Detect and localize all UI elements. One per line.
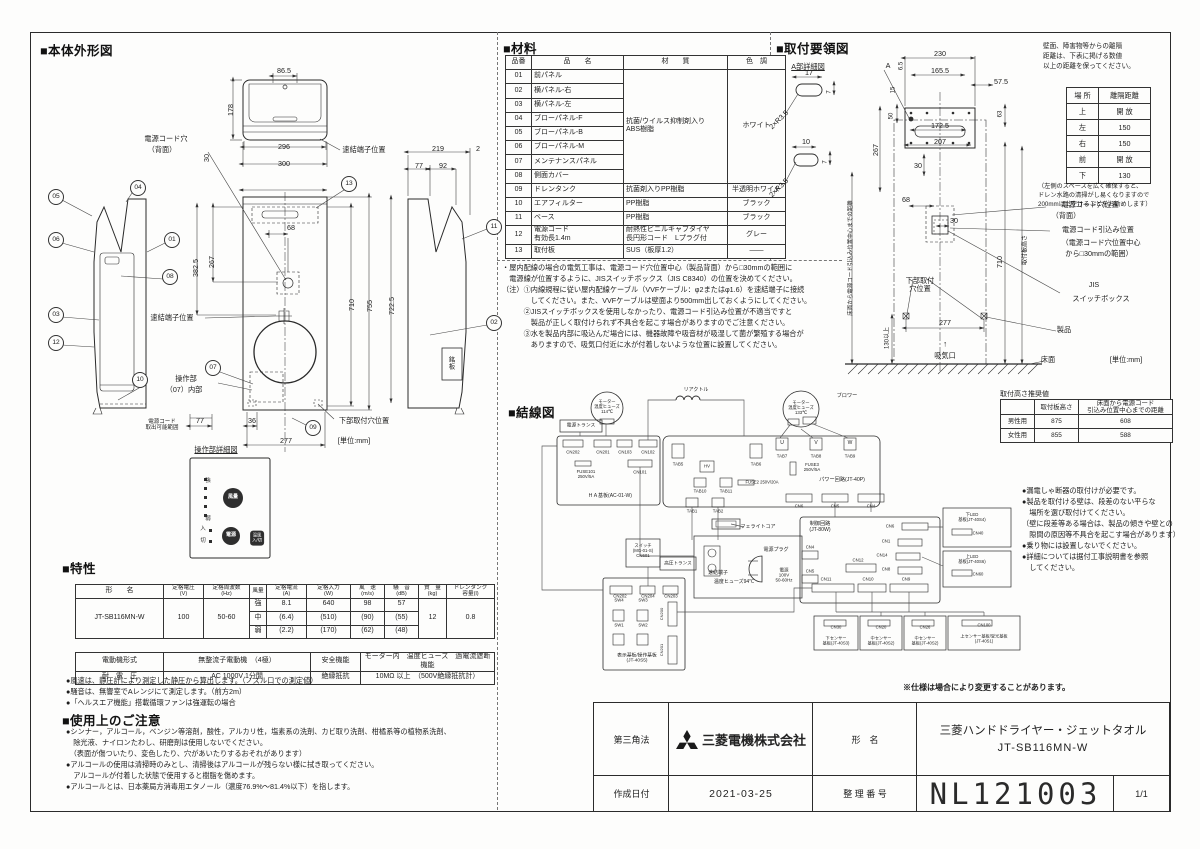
drawing-label: 277	[280, 437, 292, 445]
drawing-label: 165.5	[931, 67, 949, 75]
drawing-label: CN201	[660, 644, 664, 656]
text-line: アルコールが付着した状態で使用すると樹脂を傷めます。	[66, 771, 451, 782]
table-cell: 風量	[250, 585, 267, 599]
drawing-label: 36	[248, 417, 256, 425]
table-cell: 0.8	[447, 598, 495, 639]
wiring-diagram	[557, 391, 1020, 670]
text-line: 電源線が位置するように、JISスイッチボックス（JIS C8340）の位置を決め…	[502, 274, 811, 285]
drawing-label: 77	[415, 162, 423, 170]
part-balloon-04: 04	[130, 180, 146, 196]
drawing-label: 300	[278, 160, 290, 168]
drawing-label: 上LED 基板(JT-40S6)	[958, 555, 985, 565]
product-name-cell: 三菱ハンドドライヤー・ジェットタオル JT-SB116MN-W	[916, 702, 1170, 777]
table-cell: 定格電圧 (V)	[164, 585, 204, 599]
drawing-label: CN20	[876, 626, 887, 631]
table-cell: 10	[506, 197, 532, 211]
drawing-label: 755	[366, 300, 374, 312]
text-line: ●詳細については据付工事説明書を参照	[1022, 552, 1180, 563]
drawing-sheet: ■本体外形図 ■材料 ■取付要領図 ■結線図 ■特性 ■使用上のご注意 品番品 …	[0, 0, 1200, 849]
drawing-label: 77	[196, 417, 204, 425]
drawing-label: 速結端子位置	[342, 146, 385, 154]
table-cell: 05	[506, 126, 532, 140]
install-dims	[786, 56, 1060, 364]
text-line: ●アルコールの使用は清掃時のみとし、清掃後はアルコールが残らない様に拭き取ってく…	[66, 760, 451, 771]
table-cell: 右	[1067, 136, 1099, 152]
text-line: 製品が正しく取付けられず不具合を起こす場合がありますのでご注意ください。	[502, 318, 811, 329]
height-table-title: 取付高さ推奨値	[1000, 390, 1049, 401]
table-cell: 離隔距離	[1099, 88, 1151, 104]
company-name: 三菱電機株式会社	[702, 730, 806, 749]
table-cell: 130	[1099, 168, 1151, 184]
drawing-label: 中センサー 基板(JT-40S2)	[868, 636, 895, 645]
table-cell: 横パネル-左	[532, 98, 624, 112]
drawing-label: CN6	[886, 525, 895, 530]
drawing-label: 207	[934, 138, 946, 146]
drawing-label: 219	[432, 145, 444, 153]
drawing-label: フェライトコア	[740, 525, 775, 531]
drawing-label: （電源コード穴位置中心	[1061, 239, 1140, 247]
drawing-label: 電源コード 取出可能範囲	[145, 419, 178, 431]
table-cell: 01	[506, 70, 532, 84]
table-cell: 03	[506, 98, 532, 112]
table-cell: ――	[728, 244, 786, 258]
table-cell: 10MΩ 以上 （500V絶縁抵抗計）	[361, 671, 495, 685]
mount-height-table: 取付板高さ床面から電源コード 引込み位置中心までの距離男性用875608女性用8…	[1000, 399, 1173, 443]
table-cell: 弱	[250, 625, 267, 639]
drawing-label: 68	[902, 196, 910, 204]
drawing-label: 30	[914, 162, 922, 170]
part-balloon-09: 09	[305, 420, 321, 436]
table-cell: 定格周波数 (Hz)	[204, 585, 250, 599]
drawing-label: 下センサー 基板(JT-40S3)	[823, 636, 850, 645]
table-cell: 04	[506, 112, 532, 126]
part-balloon-01: 01	[164, 232, 180, 248]
drawing-label: SW2	[638, 624, 647, 629]
table-cell: ドレンタンク 容量(l)	[447, 585, 495, 599]
text-line: ②JISスイッチボックスを使用しなかったり、電源コード引込み位置が不適当ですと	[502, 307, 811, 318]
part-balloon-02: 02	[486, 315, 502, 331]
table-cell: 855	[1035, 429, 1079, 443]
drawing-label: 50	[889, 113, 896, 120]
drawing-label: 30	[950, 217, 958, 225]
table-cell: ブラック	[728, 197, 786, 211]
drawing-label: 中センサー 基板(JT-40S2)	[912, 636, 939, 645]
right-side-view	[408, 199, 466, 414]
table-cell: 上	[1067, 104, 1099, 120]
drawing-label: 57.5	[994, 78, 1008, 86]
drawing-label: 86.5	[277, 67, 291, 75]
table-cell: 前パネル	[532, 70, 624, 84]
table-cell: 07	[506, 155, 532, 169]
drawing-label: 床面	[1041, 356, 1055, 364]
drawing-label: 床面から電源コード引込み位置中心までの距離	[848, 200, 854, 316]
text-line: ●騒音は、無響室でAレンジにて測定します。（前方2m）	[66, 687, 317, 698]
table-cell: 開 放	[1099, 152, 1151, 168]
drawing-label: 電源	[226, 533, 236, 539]
table-cell: 電動機形式	[76, 653, 164, 672]
clearance-note: 壁面、障害物等からの離隔距離は、下表に掲げる数値以上の距離を保ってください。	[1043, 42, 1135, 72]
drawing-label: 電源トランス	[567, 423, 596, 428]
table-cell: (90)	[351, 612, 385, 626]
table-cell: 耐熱性ビニルキャブタイヤ 長円形コード Lプラグ付	[624, 226, 728, 245]
spec-table: 形 名定格電圧 (V)定格周波数 (Hz)風量定格電流 (A)定格入力 (W)風…	[75, 584, 495, 639]
drawing-label: 296	[278, 143, 290, 151]
drawing-label: 風量	[228, 495, 238, 501]
table-cell: 抗菌剤入りPP樹脂	[624, 183, 728, 197]
drawing-label: 制御回路 (JT-80W)	[809, 522, 830, 534]
drawing-label: モーター 温度ヒューズ 114℃	[594, 400, 620, 414]
table-cell: 09	[506, 183, 532, 197]
drawing-label: 操作部	[175, 375, 197, 383]
front-view-dims	[190, 152, 391, 448]
drawing-label: モーター 温度ヒューズ 133℃	[788, 401, 814, 415]
top-view	[243, 80, 327, 140]
date-label-cell: 作成日付	[593, 775, 670, 812]
drawing-label: CN200	[660, 608, 664, 620]
drawing-label: TAB9	[845, 455, 855, 460]
drawing-label: （07）内部	[166, 386, 203, 394]
text-line: ●風速は、静圧計により測定した静圧から算出します。（ノズル口での測定値）	[66, 676, 317, 687]
drawing-label: 68	[287, 224, 295, 232]
table-cell: 騒 音 (dB)	[385, 585, 419, 599]
table-cell: 床面から電源コード 引込み位置中心までの距離	[1079, 400, 1173, 415]
table-cell: 08	[506, 169, 532, 183]
drawing-label: [単位:mm]	[338, 437, 370, 445]
table-cell: 02	[506, 84, 532, 98]
company-cell: 三菱電機株式会社	[668, 702, 814, 777]
drawing-label: 強	[205, 478, 211, 484]
table-cell: (510)	[307, 612, 351, 626]
drawing-label: 277	[939, 319, 951, 327]
table-cell	[1001, 400, 1035, 415]
drawing-label: 6.5	[899, 62, 906, 70]
table-cell: 8.1	[267, 598, 307, 612]
drawing-label: A	[886, 62, 891, 70]
table-cell: 色 調	[728, 56, 786, 70]
text-line: ●漏電しゃ断器の取付けが必要です。	[1022, 486, 1180, 497]
table-cell: 定格入力 (W)	[307, 585, 351, 599]
outline-section-title: ■本体外形図	[40, 40, 113, 59]
drawing-label: 電源コード引込み位置	[1062, 226, 1134, 234]
table-cell: 質 量 (kg)	[419, 585, 447, 599]
table-cell: (48)	[385, 625, 419, 639]
text-line: 隙間の原因等不具合を起こす場合があります）	[1022, 530, 1180, 541]
table-cell: (6.4)	[267, 612, 307, 626]
table-cell: 98	[351, 598, 385, 612]
drawing-label: 17	[805, 69, 813, 77]
drawing-label: 吸気口	[934, 352, 956, 360]
wiring-section-title: ■結線図	[508, 402, 555, 421]
drawing-label: SW4	[614, 599, 623, 604]
drawing-label: [単位:mm]	[1110, 356, 1142, 364]
drawing-label: FUSE2 250V/20A	[745, 481, 778, 486]
drawing-label: CN40	[973, 532, 984, 537]
table-cell: 材 質	[624, 56, 728, 70]
drawing-label: CN14	[877, 554, 888, 559]
table-cell: SUS（板厚1.2）	[624, 244, 728, 258]
number-cell: NL121003	[916, 775, 1115, 812]
table-cell: (62)	[351, 625, 385, 639]
drawing-label: TAB10	[694, 490, 707, 495]
spec-change-note: ※仕様は場合により変更することがあります。	[903, 682, 1070, 693]
drawing-label: 63	[998, 111, 1005, 118]
drawing-label: 速結端子	[708, 571, 728, 577]
table-cell: 取付板	[532, 244, 624, 258]
text-line: ●乗り物には設置しないでください。	[1022, 541, 1180, 552]
drawing-label: 267	[208, 256, 216, 268]
usage-cautions: ●シンナー，アルコール，ベンジン等溶剤，酸性，アルカリ性，塩素系の洗剤、カビ取り…	[66, 727, 451, 793]
part-balloon-08: 08	[162, 269, 178, 285]
text-line: 除光液、ナイロンたわし、研磨剤は使用しないでください。	[66, 738, 451, 749]
text-line: ●アルコールとは、日本薬局方消毒用エタノール（濃度76.9%～81.4%以下）を…	[66, 782, 451, 793]
table-cell: 中	[250, 612, 267, 626]
spec-section-title: ■特性	[62, 558, 96, 577]
drawing-label: CN10	[863, 578, 874, 583]
table-cell: 608	[1079, 415, 1173, 429]
text-line: 場所を選び取付けてください。	[1022, 508, 1180, 519]
table-cell: グレー	[728, 226, 786, 245]
part-balloon-05: 05	[48, 189, 64, 205]
text-line: ・屋内配線の場合の電気工事は、電源コード穴位置中心（製品背面）から□30mmの範…	[502, 263, 811, 274]
drawing-label: ＨＡ基板(AC-01-W)	[588, 494, 632, 500]
drawing-label: 382.5	[192, 259, 200, 277]
clearance-table: 場 所離隔距離上開 放左150右150前開 放下130	[1066, 87, 1151, 184]
drawing-label: TAB2	[713, 510, 723, 515]
drawing-label: TAB6	[751, 463, 761, 468]
table-cell: モーター内 温度ヒューズ 過電流遮断機能	[361, 653, 495, 672]
table-cell: 12	[506, 226, 532, 245]
drawing-label: FUSE3 250V/5A	[804, 463, 821, 473]
drawing-label: CN202	[566, 451, 579, 456]
electrical-notes: ・屋内配線の場合の電気工事は、電源コード穴位置中心（製品背面）から□30mmの範…	[502, 263, 811, 351]
table-cell: PP樹脂	[624, 212, 728, 226]
drawing-label: 230	[934, 50, 946, 58]
drawing-label: CN11	[821, 578, 832, 583]
drawing-label: CN9	[902, 578, 911, 583]
table-cell: (2.2)	[267, 625, 307, 639]
drawing-label: スイッチ (MG-01-S) CN601	[633, 544, 653, 558]
drawing-label: 下部取付穴位置	[339, 417, 389, 425]
table-cell: 57	[385, 598, 419, 612]
table-cell: 抗菌/ウイルス抑制剤入り ABS樹脂	[624, 70, 728, 184]
part-balloon-03: 03	[48, 307, 64, 323]
drawing-label: 製品	[1057, 326, 1071, 334]
drawing-label: から□30mmの範囲）	[1065, 250, 1132, 258]
drawing-label: 下LED 基板(JT-40S4)	[958, 513, 985, 523]
table-cell: ドレンタンク	[532, 183, 624, 197]
projection-method-cell: 第三角法	[593, 702, 670, 777]
table-cell: ブローパネル-F	[532, 112, 624, 126]
table-cell: ブラック	[728, 212, 786, 226]
drawing-label: TAB11	[720, 490, 733, 495]
drawing-label: 弱	[205, 516, 211, 522]
table-cell: 588	[1079, 429, 1173, 443]
drawing-label: CN60	[973, 573, 984, 578]
drawing-label: U	[780, 441, 784, 447]
drawing-label: CN26	[920, 626, 931, 631]
drawing-label: 722.5	[388, 297, 396, 315]
table-cell: 女性用	[1001, 429, 1035, 443]
drawing-label: （背面）	[1052, 212, 1081, 220]
drawing-label: 15	[891, 87, 898, 94]
drawing-label: 電源 100V 50-60Hz	[775, 567, 792, 582]
table-cell: 安全機能	[311, 653, 361, 672]
table-cell: 13	[506, 244, 532, 258]
install-section-title: ■取付要領図	[776, 38, 849, 57]
drawing-label: 130以上	[885, 327, 892, 349]
table-cell: 電源コード 有効長1.4m	[532, 226, 624, 245]
drawing-label: SW1	[614, 624, 623, 629]
table-cell: 100	[164, 598, 204, 639]
date-cell: 2021-03-25	[668, 775, 814, 812]
text-line: 以上の距離を保ってください。	[1043, 62, 1135, 72]
drawing-label: 取付板高さ	[1023, 235, 1030, 265]
drawing-label: TAB1	[687, 510, 697, 515]
drawing-label: V	[814, 441, 817, 447]
table-cell: 男性用	[1001, 415, 1035, 429]
product-model: JT-SB116MN-W	[940, 740, 1147, 758]
left-view-leaders	[62, 193, 253, 400]
drawing-label: 電源プラグ	[763, 548, 788, 554]
drawing-label: CN4	[806, 546, 815, 551]
drawing-label: 銘 板	[449, 357, 456, 372]
spec-notes: ●風速は、静圧計により測定した静圧から算出します。（ノズル口での測定値）●騒音は…	[66, 676, 317, 709]
table-cell: ブローパネル-B	[532, 126, 624, 140]
text-line: ●シンナー，アルコール，ベンジン等溶剤，酸性，アルカリ性，塩素系の洗剤、カビ取り…	[66, 727, 451, 738]
text-line: （左側のスペースを広く確保すると、	[1038, 183, 1151, 192]
table-cell: 絶縁抵抗	[311, 671, 361, 685]
model-label-cell: 形 名	[812, 702, 918, 777]
table-cell: 横パネル-右	[532, 84, 624, 98]
text-line: （注）①内線規程に従い屋内配線ケーブル（VVFケーブル：φ2またはφ1.6）を速…	[502, 285, 811, 296]
drawing-number: NL121003	[930, 777, 1102, 811]
drawing-label: 710	[996, 256, 1004, 268]
table-cell: 風 速 (m/s)	[351, 585, 385, 599]
table-cell: 150	[1099, 136, 1151, 152]
installation-notes: ●漏電しゃ断器の取付けが必要です。●製品を取付ける壁は、段差のない平らな 場所を…	[1022, 486, 1180, 574]
drawing-label: CN12	[853, 559, 864, 564]
drawing-label: W	[848, 441, 853, 447]
top-view-dims	[230, 73, 340, 167]
drawing-label: 上センサー基板/受光基板 (JT-40S1)	[960, 634, 1007, 643]
table-cell: 品 名	[532, 56, 624, 70]
part-balloon-07: 07	[205, 360, 221, 376]
text-line: ●「ヘルスエア機能」搭載循環ファンは強運転の場合	[66, 698, 317, 709]
drawing-label: CN30	[831, 626, 842, 631]
drawing-label: 入	[200, 526, 206, 532]
drawing-label: 温風 入/切	[250, 531, 264, 546]
drawing-label: SW3	[638, 599, 647, 604]
drawing-label: 電源コード穴	[144, 135, 187, 143]
table-cell: 50-60	[204, 598, 250, 639]
table-cell: 取付板高さ	[1035, 400, 1079, 415]
drawing-label: 切	[200, 538, 206, 544]
text-line: 距離は、下表に掲げる数値	[1043, 52, 1135, 62]
table-cell: ブローパネル-M	[532, 141, 624, 155]
table-cell: 形 名	[76, 585, 164, 599]
drawing-label: CN1	[882, 540, 891, 545]
drawing-label: 30	[203, 154, 211, 162]
part-balloon-06: 06	[48, 232, 64, 248]
table-cell: 06	[506, 141, 532, 155]
text-line: ●製品を取付ける壁は、段差のない平らな	[1022, 497, 1180, 508]
drawing-label: ブロワー	[837, 394, 858, 400]
table-cell: 下	[1067, 168, 1099, 184]
drawing-label: パワー回路(JT-40P)	[819, 478, 865, 484]
text-line: 壁面、障害物等からの離隔	[1043, 42, 1135, 52]
drawing-label: TAB7	[777, 455, 787, 460]
right-view-dims	[408, 148, 487, 335]
text-line: ありますので、吸気口付近に水が付着しないような位置に設置してください。	[502, 340, 811, 351]
table-cell: PP樹脂	[624, 197, 728, 211]
drawing-label: 7	[823, 160, 830, 163]
drawing-label: CN6	[795, 505, 804, 510]
table-cell: 場 所	[1067, 88, 1099, 104]
table-cell: 定格電流 (A)	[267, 585, 307, 599]
text-line: してください。また、VVFケーブルは壁面より500mm出しておくようにしてくださ…	[502, 296, 811, 307]
front-view	[243, 192, 327, 452]
table-cell: 12	[419, 598, 447, 639]
drawing-label: 172.5	[931, 122, 949, 130]
number-label-cell: 整 理 番 号	[812, 775, 918, 812]
drawing-label: CN102	[641, 451, 654, 456]
table-cell: 側面カバー	[532, 169, 624, 183]
drawing-label: （背面）	[148, 146, 177, 154]
drawing-label: 温度ヒューズ94℃	[714, 580, 754, 586]
table-cell: 品番	[506, 56, 532, 70]
drawing-label: HV	[704, 465, 710, 470]
table-cell: 640	[307, 598, 351, 612]
drawing-label: ↑	[943, 341, 947, 350]
drawing-label: リアクトル	[684, 388, 709, 394]
table-cell: 開 放	[1099, 104, 1151, 120]
text-line: （表面が傷ついたり、変色したり、穴があいたりするおそれがあります）	[66, 749, 451, 760]
drawing-label: 92	[439, 162, 447, 170]
part-balloon-13: 13	[341, 176, 357, 192]
part-balloon-11: 11	[486, 219, 502, 235]
drawing-label: FUSE101 250V/5A	[577, 470, 596, 480]
table-cell: 11	[506, 212, 532, 226]
table-cell: 左	[1067, 120, 1099, 136]
drawing-label: CN4	[867, 505, 876, 510]
drawing-label: CN5	[806, 570, 815, 575]
drawing-label: 電源コード穴位置	[1061, 201, 1119, 209]
drawing-label: 操作部詳細図	[194, 446, 237, 454]
drawing-label: CN103	[618, 451, 631, 456]
table-cell: ベース	[532, 212, 624, 226]
drawing-label: スイッチボックス	[1072, 295, 1129, 303]
table-cell: 強	[250, 598, 267, 612]
drawing-label: TAB5	[673, 463, 683, 468]
materials-table: 品番品 名材 質色 調01前パネル抗菌/ウイルス抑制剤入り ABS樹脂ホワイト0…	[505, 55, 786, 259]
drawing-label: 速結端子位置	[150, 314, 193, 322]
part-balloon-12: 12	[48, 335, 64, 351]
drawing-label: 高圧トランス	[664, 560, 691, 565]
mitsubishi-logo-icon	[676, 730, 698, 749]
table-cell: 875	[1035, 415, 1079, 429]
table-cell: 150	[1099, 120, 1151, 136]
drawing-label: 267	[872, 144, 880, 156]
drawing-label: 表示基板/操作基板 (JT-40S5)	[617, 654, 657, 665]
page-cell: 1/1	[1113, 775, 1170, 812]
part-balloon-10: 10	[132, 372, 148, 388]
drawing-label: 下部取付 穴位置	[906, 277, 935, 293]
drawing-label: CN201	[596, 451, 609, 456]
drawing-label: CN5	[831, 505, 840, 510]
drawing-label: 7	[827, 90, 834, 93]
table-cell: エアフィルター	[532, 197, 624, 211]
drawing-label: 10	[802, 138, 810, 146]
